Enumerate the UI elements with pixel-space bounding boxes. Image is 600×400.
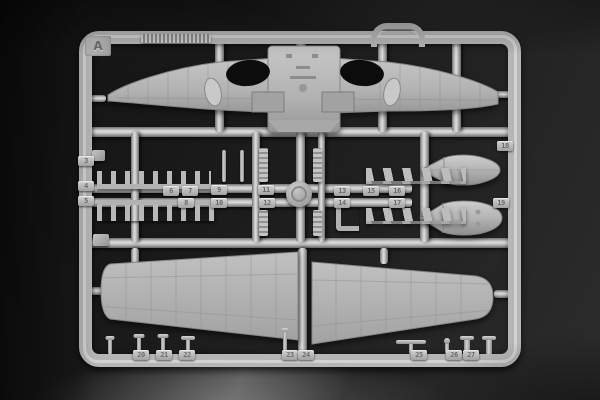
- part-number-tab-5: 5: [78, 196, 94, 206]
- l-bracket-part: [336, 208, 359, 231]
- part-number-tab-25: 25: [411, 350, 427, 360]
- part-number-tab-26: 26: [446, 350, 462, 360]
- part-number-tab-18: 18: [497, 141, 513, 151]
- part-number-tab-7: 7: [182, 186, 198, 196]
- clip-strip-part-2: [366, 208, 466, 224]
- part-number-tab-16: 16: [389, 186, 405, 196]
- part-number-tab-6: 6: [163, 186, 179, 196]
- part-number-tab-23: 23: [282, 350, 298, 360]
- round-disc-part: [286, 181, 312, 207]
- ladder-part-2: [97, 200, 215, 221]
- lower-wing-parts: [96, 248, 500, 348]
- radiator-block-right: [322, 92, 354, 112]
- part-number-tab-17: 17: [389, 198, 405, 208]
- upper-wing-fuselage-part: [100, 40, 508, 135]
- part-number-tab-4: 4: [78, 181, 94, 191]
- part-number-tab-15: 15: [363, 186, 379, 196]
- part-number-tab-8: 8: [178, 198, 194, 208]
- part-number-tab-21: 21: [156, 350, 172, 360]
- part-number-tab-9: 9: [211, 185, 227, 195]
- lower-wing-left-part: [96, 248, 298, 348]
- part-number-tab-10: 10: [211, 198, 227, 208]
- part-number-tab-12: 12: [259, 198, 275, 208]
- finned-part-1: [259, 148, 268, 182]
- part-number-tab-13: 13: [334, 186, 350, 196]
- part-number-tab-22: 22: [179, 350, 195, 360]
- part-number-tab-11: 11: [258, 185, 274, 195]
- part-number-tab-3: 3: [78, 156, 94, 166]
- part-number-tab-14: 14: [334, 198, 350, 208]
- finned-part-4: [313, 210, 322, 236]
- small-antenna-part: [104, 336, 116, 354]
- lower-wing-right-part: [312, 248, 493, 348]
- part-number-tab-20: 20: [133, 350, 149, 360]
- clip-strip-part-1: [366, 168, 466, 184]
- pin-part-2: [240, 150, 244, 182]
- pin-part-1: [222, 150, 226, 182]
- finned-part-2: [313, 148, 322, 182]
- sprue-photo: A: [0, 0, 600, 400]
- part-number-tab-27: 27: [463, 350, 479, 360]
- part-number-tab-19: 19: [493, 198, 509, 208]
- drop-tank-parts: [416, 148, 508, 240]
- radiator-block-left: [252, 92, 284, 112]
- t-bolt-part: [482, 336, 496, 354]
- finned-part-3: [259, 210, 268, 236]
- part-number-tab-24: 24: [298, 350, 314, 360]
- left-rail-bracket-2: [93, 234, 109, 246]
